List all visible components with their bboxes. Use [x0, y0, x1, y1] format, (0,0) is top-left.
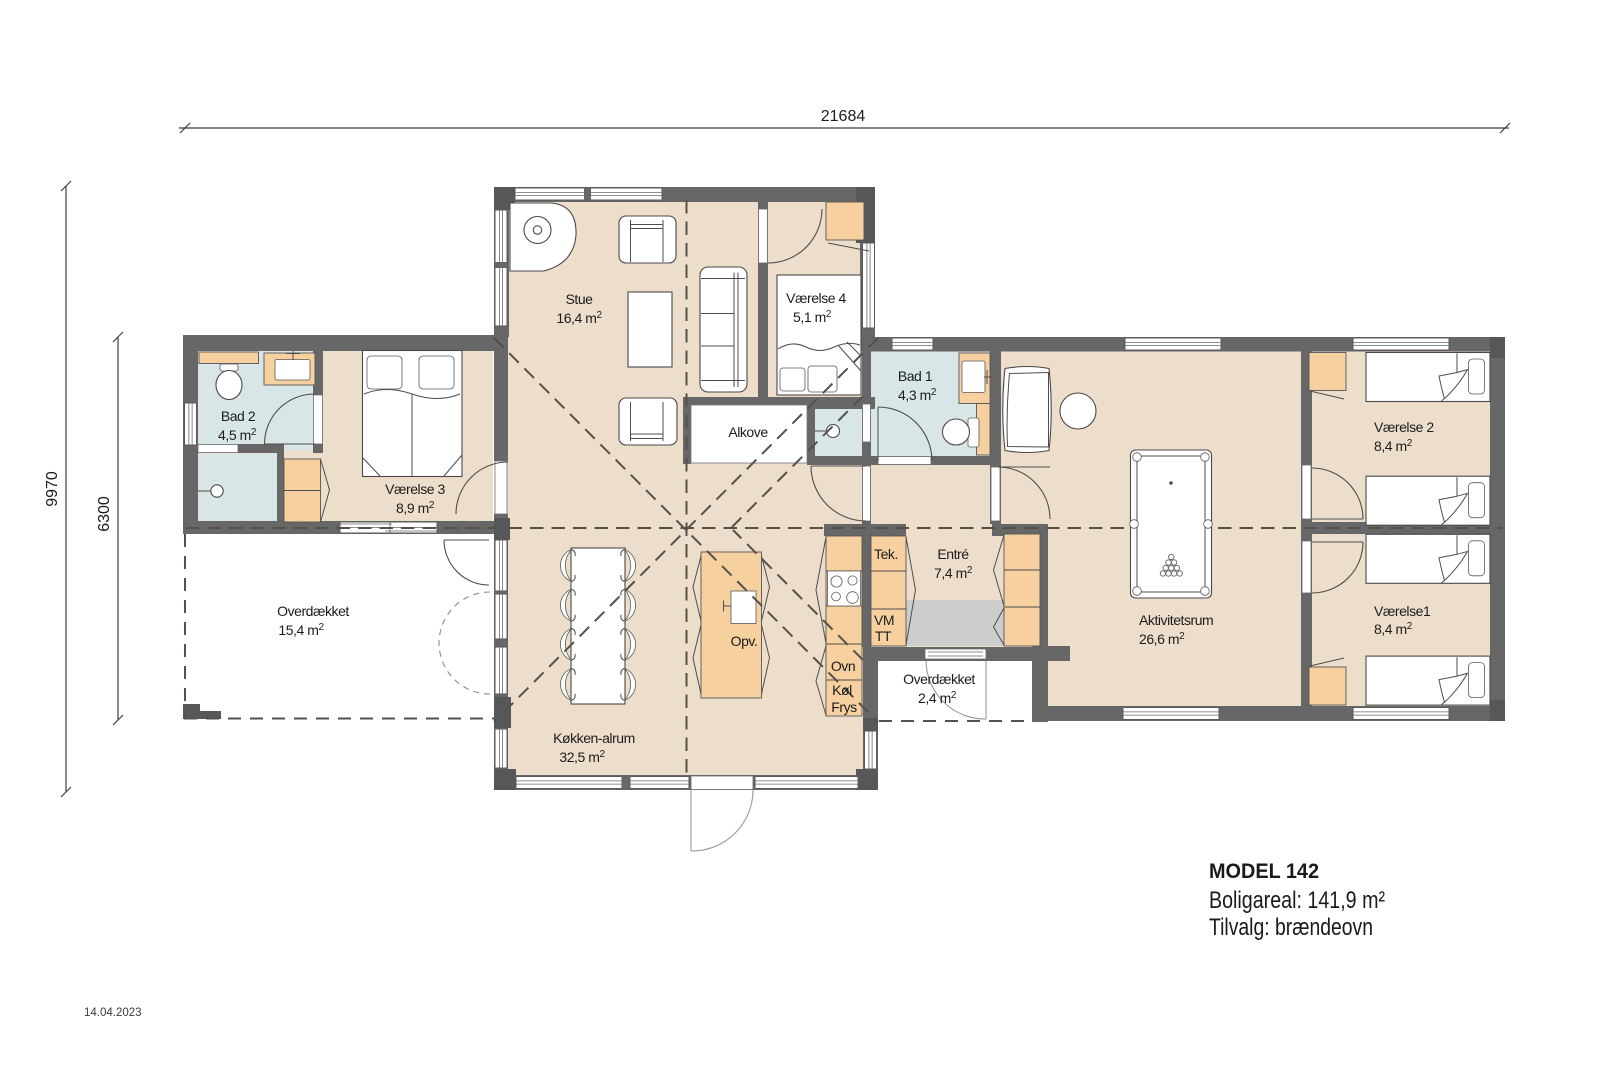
svg-text:VM: VM — [874, 612, 894, 628]
svg-text:Stue: Stue — [566, 291, 594, 307]
svg-text:Aktivitetsrum: Aktivitetsrum — [1139, 612, 1213, 628]
svg-text:Bad 2: Bad 2 — [221, 408, 256, 424]
svg-text:Værelse 2: Værelse 2 — [1374, 419, 1434, 435]
svg-text:MODEL 142: MODEL 142 — [1209, 860, 1319, 883]
svg-text:9970: 9970 — [44, 471, 61, 507]
svg-text:14.04.2023: 14.04.2023 — [84, 1007, 142, 1019]
svg-text:Alkove: Alkove — [728, 424, 768, 440]
svg-text:32,5 m2: 32,5 m2 — [559, 749, 605, 765]
svg-text:Værelse 4: Værelse 4 — [786, 290, 846, 306]
svg-text:6300: 6300 — [96, 496, 113, 532]
svg-text:Overdækket: Overdækket — [903, 671, 975, 687]
svg-text:Værelse1: Værelse1 — [1374, 603, 1431, 619]
svg-text:16,4 m2: 16,4 m2 — [556, 310, 602, 326]
svg-text:Værelse 3: Værelse 3 — [385, 481, 445, 497]
svg-text:21684: 21684 — [821, 108, 866, 125]
svg-text:26,6 m2: 26,6 m2 — [1139, 631, 1185, 647]
svg-text:Køl: Køl — [832, 682, 852, 698]
svg-text:TT: TT — [875, 628, 892, 644]
svg-text:15,4 m2: 15,4 m2 — [278, 622, 324, 638]
svg-text:Ovn: Ovn — [831, 658, 855, 674]
svg-text:Køkken-alrum: Køkken-alrum — [553, 730, 635, 746]
svg-text:Tek.: Tek. — [874, 546, 898, 562]
svg-text:Bad 1: Bad 1 — [898, 368, 933, 384]
svg-text:Tilvalg: brændeovn: Tilvalg: brændeovn — [1209, 914, 1373, 941]
svg-text:Frys: Frys — [831, 699, 857, 715]
svg-text:Opv.: Opv. — [731, 633, 758, 649]
svg-text:Boligareal: 141,9 m²: Boligareal: 141,9 m² — [1209, 887, 1385, 914]
svg-text:Overdækket: Overdækket — [277, 603, 349, 619]
svg-text:Entré: Entré — [937, 546, 969, 562]
